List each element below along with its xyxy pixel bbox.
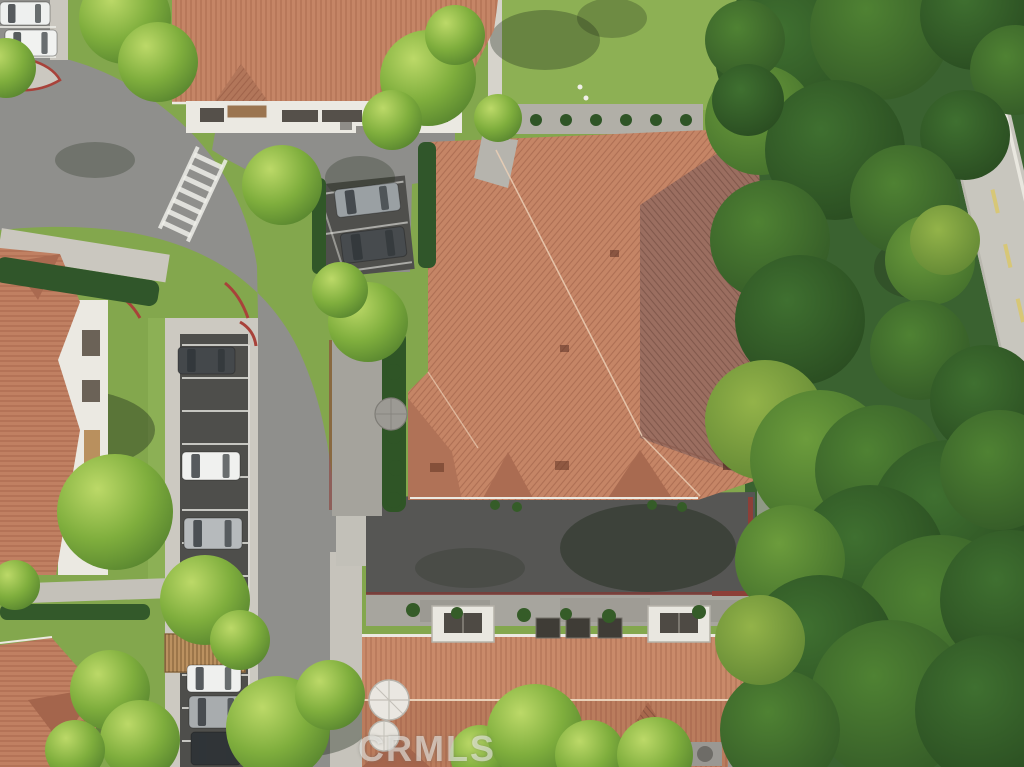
wall-shrub xyxy=(517,608,531,622)
rear-window xyxy=(225,667,231,690)
angled-umbrella xyxy=(375,398,407,430)
tree xyxy=(362,90,422,150)
tree xyxy=(242,145,322,225)
wall-shrub xyxy=(647,500,657,510)
tree xyxy=(210,610,270,670)
silver-suv xyxy=(184,518,242,549)
windshield xyxy=(196,667,204,690)
hedge-bump xyxy=(680,114,692,126)
wall-shrub xyxy=(692,605,706,619)
wall-shrub xyxy=(490,500,500,510)
windshield xyxy=(193,520,202,547)
hedge-bump xyxy=(530,114,542,126)
tree-shadow xyxy=(55,142,135,178)
wall-shrub xyxy=(512,502,522,512)
tree xyxy=(295,660,365,730)
rear-window xyxy=(225,520,232,547)
aerial-photo-listing: CRMLS xyxy=(0,0,1024,767)
white-car xyxy=(0,2,50,25)
rear-window xyxy=(35,4,41,23)
windshield xyxy=(8,4,16,23)
wall-shrub xyxy=(560,608,572,620)
awning xyxy=(227,105,267,118)
west-path xyxy=(332,338,382,516)
hedge-bump xyxy=(386,364,402,380)
forest-blob xyxy=(712,64,784,136)
crmls-watermark: CRMLS xyxy=(358,728,496,767)
rear-window xyxy=(218,349,225,372)
hedge-bump xyxy=(386,428,402,444)
white-car xyxy=(182,452,240,480)
tree xyxy=(425,5,485,65)
skylight xyxy=(566,618,590,638)
windshield xyxy=(191,454,200,478)
wall-shrub xyxy=(406,603,420,617)
skylight xyxy=(536,618,560,638)
tree xyxy=(57,454,173,570)
tree xyxy=(474,94,522,142)
windshield xyxy=(198,698,206,726)
hedge-bump xyxy=(650,114,662,126)
tree xyxy=(118,22,198,102)
forest-blob xyxy=(910,205,980,275)
wall-shrub xyxy=(602,609,616,623)
hedge-row xyxy=(418,142,436,268)
dark-car xyxy=(178,347,235,374)
hedge-bump xyxy=(620,114,632,126)
hedge-bump xyxy=(386,492,402,508)
hedge-bump xyxy=(590,114,602,126)
windshield xyxy=(187,349,196,372)
tree-shadow xyxy=(560,504,736,592)
rear-window xyxy=(223,454,230,478)
tree-shadow xyxy=(415,548,525,588)
wall-shrub xyxy=(451,607,463,619)
tree xyxy=(312,262,368,318)
aerial-scene xyxy=(0,0,1024,767)
hedge-bump xyxy=(388,460,404,476)
hedge-bump xyxy=(560,114,572,126)
windshield xyxy=(199,734,207,763)
wall-shrub xyxy=(677,502,687,512)
red-curb-west xyxy=(329,340,332,510)
rear-window xyxy=(41,32,47,54)
forest-blob xyxy=(715,595,805,685)
